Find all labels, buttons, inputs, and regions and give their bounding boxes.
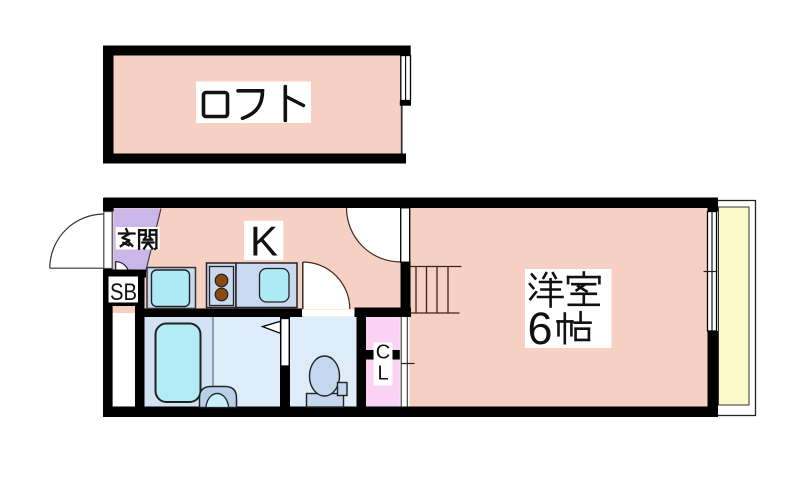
svg-text:SB: SB xyxy=(110,279,137,306)
svg-text:K: K xyxy=(250,218,278,265)
svg-text:6: 6 xyxy=(527,303,552,354)
svg-text:L: L xyxy=(377,363,388,385)
svg-text:C: C xyxy=(376,342,390,364)
